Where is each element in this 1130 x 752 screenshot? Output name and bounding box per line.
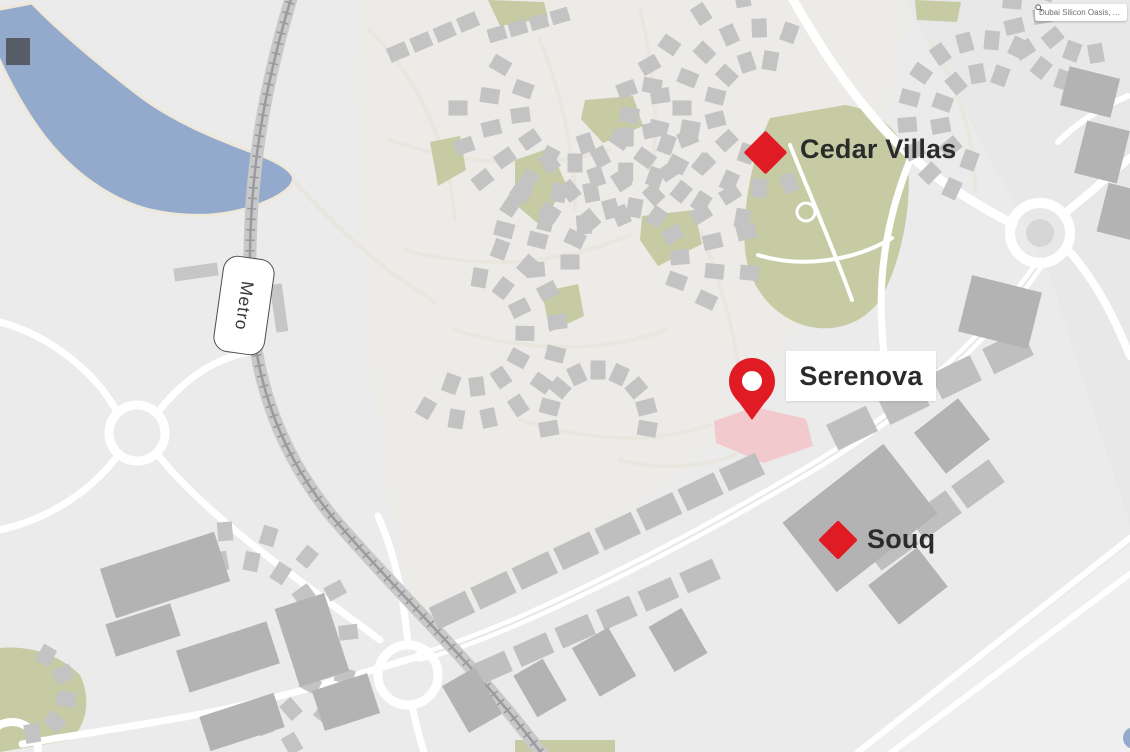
cedar-villas-diamond-icon[interactable]	[744, 131, 788, 175]
map-canvas[interactable]: Metro Cedar Villas Serenova Souq Dubai S…	[0, 0, 1130, 752]
serenova-label: Serenova	[799, 361, 922, 392]
souq-label: Souq	[867, 524, 935, 555]
serenova-label-box: Serenova	[786, 351, 936, 401]
serenova-pin-icon[interactable]	[724, 356, 780, 422]
metro-station-pill[interactable]: Metro	[212, 254, 277, 357]
search-value: Dubai Silicon Oasis, Axi...	[1039, 8, 1123, 17]
search-box[interactable]: Dubai Silicon Oasis, Axi...	[1035, 4, 1127, 21]
search-icon	[1035, 4, 1043, 12]
cedar-villas-label: Cedar Villas	[800, 134, 957, 165]
metro-label: Metro	[230, 279, 258, 331]
souq-diamond-icon[interactable]	[818, 520, 858, 560]
marker-overlay: Metro Cedar Villas Serenova Souq Dubai S…	[0, 0, 1130, 752]
